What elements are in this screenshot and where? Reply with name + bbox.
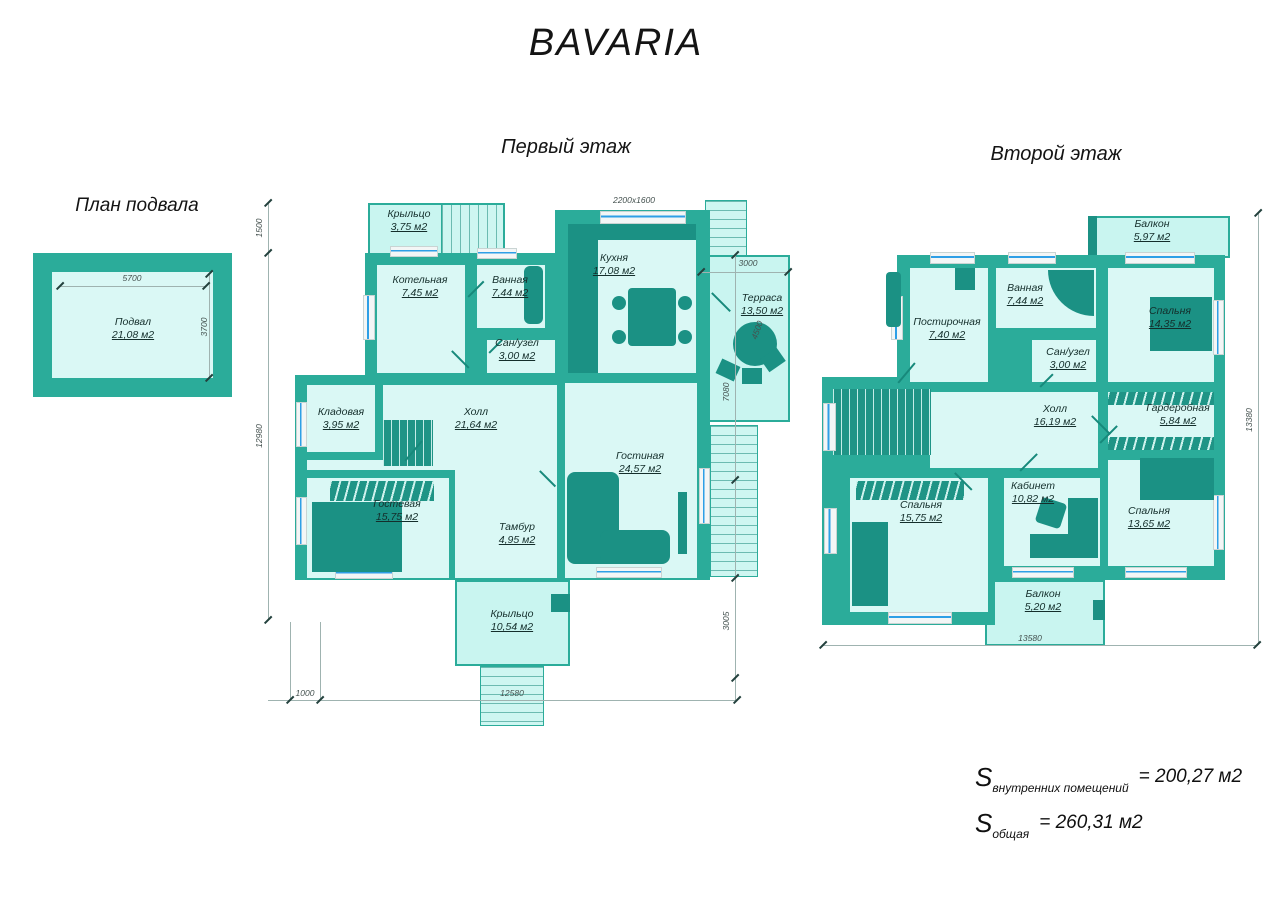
room-label-kotelnaya: Котельная 7,45 м2 <box>393 274 448 300</box>
dim-label-bottom: 12580 <box>500 688 524 698</box>
porch-pillar <box>551 594 570 612</box>
furniture-tv-stand <box>678 492 687 554</box>
porch-top-stairs <box>441 204 504 254</box>
dim-label-kitchen-window: 2200x1600 <box>613 195 655 205</box>
dim-line <box>1258 212 1259 645</box>
room-label-kryltso-top: Крыльцо 3,75 м2 <box>387 208 430 234</box>
dim-line <box>700 272 788 273</box>
window <box>1125 567 1187 578</box>
furniture-ironing-board <box>886 272 901 327</box>
window <box>824 508 837 554</box>
wardrobe-hatch <box>856 481 964 500</box>
room-label-gostinaya: Гостиная 24,57 м2 <box>616 450 664 476</box>
dim-line <box>209 274 210 378</box>
room-label-balkon-bottom: Балкон 5,20 м2 <box>1025 588 1061 614</box>
room-label-bedroom-1575: Спальня 15,75 м2 <box>900 499 942 525</box>
dim-label-sf-right: 13380 <box>1244 408 1254 432</box>
room-label-hall: Холл 21,64 м2 <box>455 406 497 432</box>
terrace-side-stairs <box>710 425 758 577</box>
dim-line <box>268 700 737 701</box>
dim-line <box>60 286 206 287</box>
window <box>390 246 438 257</box>
room-label-postirochnaya: Постирочная 7,40 м2 <box>913 316 980 342</box>
furniture-dining-table <box>628 288 676 346</box>
room-label-podval: Подвал 21,08 м2 <box>112 316 154 342</box>
window <box>296 497 307 545</box>
furniture-chair <box>612 330 626 344</box>
furniture-bed <box>852 522 888 606</box>
room-label-gostevaya: Гостевая 15,75 м2 <box>373 498 421 524</box>
window <box>296 402 307 447</box>
dim-label-bottom-left: 1000 <box>296 688 315 698</box>
dim-label-sf-bottom: 13580 <box>1018 633 1042 643</box>
room-label-kabinet: Кабинет 10,82 м2 <box>1011 480 1055 506</box>
dim-label-left-top: 1500 <box>254 219 264 238</box>
dim-extension <box>320 622 321 700</box>
kitchen-counter-top <box>598 224 696 240</box>
kitchen-counter <box>568 224 598 373</box>
window <box>1012 567 1074 578</box>
furniture-terrace-chair <box>742 368 762 384</box>
room-label-vannaya-2: Ванная 7,44 м2 <box>1007 282 1043 308</box>
balcony-pillar <box>1088 216 1097 258</box>
second-floor-title: Второй этаж <box>991 143 1122 166</box>
room-label-kladovaya: Кладовая 3,95 м2 <box>318 406 364 432</box>
room-label-hall-2: Холл 16,19 м2 <box>1034 403 1076 429</box>
window <box>823 403 836 451</box>
floor-plan-sheet: BAVARIA Первый этаж Второй этаж План под… <box>0 0 1280 905</box>
furniture-chair <box>612 296 626 310</box>
furniture-sofa <box>600 530 670 564</box>
room-label-kryltso-bottom: Крыльцо 10,54 м2 <box>490 608 533 634</box>
window <box>699 468 710 524</box>
window <box>1213 495 1224 550</box>
project-title: BAVARIA <box>529 22 704 65</box>
wardrobe-hatch <box>1108 437 1214 450</box>
room-label-bedroom-1365: Спальня 13,65 м2 <box>1128 505 1170 531</box>
partition <box>375 385 383 455</box>
furniture-bed <box>1140 458 1214 500</box>
room-label-garderobnaya: Гардеробная 5,84 м2 <box>1146 402 1210 428</box>
room-label-tambur: Тамбур 4,95 м2 <box>499 521 535 547</box>
dim-label-terrace-width: 3000 <box>739 258 758 268</box>
total-overall-area: Sобщая= 260,31 м2 <box>975 808 1143 841</box>
interior-stairs <box>383 420 433 466</box>
first-floor-title: Первый этаж <box>501 136 631 159</box>
interior-stairs-2 <box>833 389 931 455</box>
dim-label-left: 12980 <box>254 424 264 448</box>
dim-line <box>268 203 269 620</box>
dim-line <box>822 645 1258 646</box>
terrace-entry-stairs <box>705 200 747 256</box>
room-label-balkon-top: Балкон 5,97 м2 <box>1134 218 1170 244</box>
room-label-bedroom-1435: Спальня 14,35 м2 <box>1149 305 1191 331</box>
room-label-sanuzel-2: Сан/узел 3,00 м2 <box>1046 346 1090 372</box>
furniture-chair <box>678 330 692 344</box>
window <box>930 252 975 264</box>
window <box>888 612 952 624</box>
dim-label-basement-height: 3700 <box>199 318 209 337</box>
basement-title: План подвала <box>75 195 198 217</box>
window <box>477 248 517 259</box>
partition <box>307 452 383 460</box>
room-label-vannaya: Ванная 7,44 м2 <box>492 274 528 300</box>
window <box>363 295 375 340</box>
window <box>596 567 662 578</box>
room-label-terrace: Терраса 13,50 м2 <box>741 292 783 318</box>
window <box>1213 300 1224 355</box>
furniture-chair <box>678 296 692 310</box>
window <box>1125 252 1195 264</box>
dim-label-right-bottom: 3005 <box>721 612 731 631</box>
dim-tick <box>1253 641 1261 649</box>
dim-label-right-top: 7080 <box>721 383 731 402</box>
total-interior-area: Sвнутренних помещений= 200,27 м2 <box>975 762 1242 795</box>
dim-extension <box>290 622 291 700</box>
dim-label-basement-width: 5700 <box>123 273 142 283</box>
area-symbol: S <box>975 808 992 838</box>
furniture-desk <box>1030 534 1070 558</box>
window <box>1008 252 1056 264</box>
window <box>600 211 686 224</box>
balcony-pillar <box>1093 600 1105 620</box>
furniture-desk <box>1068 498 1098 558</box>
area-symbol: S <box>975 762 992 792</box>
dim-tick <box>264 616 272 624</box>
furniture-washer <box>955 268 975 290</box>
room-label-sanuzel: Сан/узел 3,00 м2 <box>495 337 539 363</box>
room-label-kitchen: Кухня 17,08 м2 <box>593 252 635 278</box>
